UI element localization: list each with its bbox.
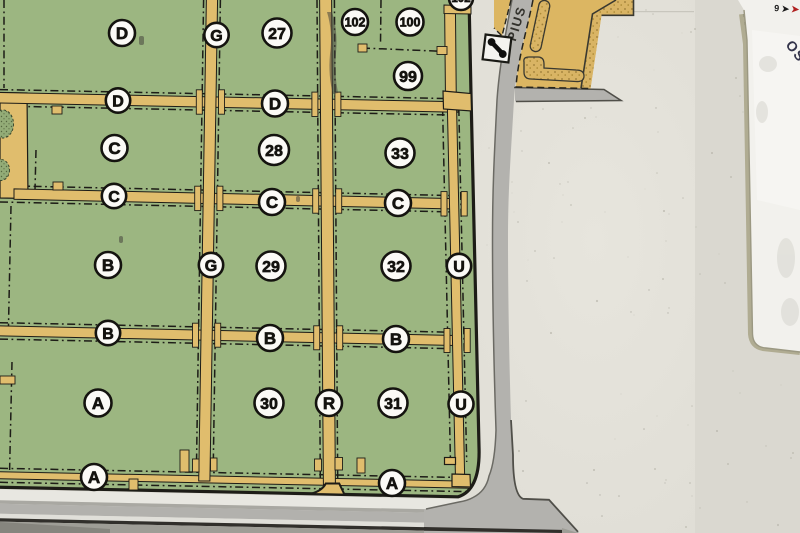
svg-text:30: 30 bbox=[260, 396, 278, 413]
svg-text:33: 33 bbox=[391, 146, 409, 163]
svg-text:D: D bbox=[112, 93, 124, 110]
svg-text:27: 27 bbox=[268, 26, 286, 43]
svg-text:A: A bbox=[92, 394, 104, 413]
svg-text:28: 28 bbox=[265, 143, 283, 160]
svg-text:B: B bbox=[102, 326, 114, 343]
svg-text:U: U bbox=[455, 397, 467, 414]
svg-text:U: U bbox=[453, 259, 465, 276]
svg-text:31: 31 bbox=[384, 396, 402, 413]
svg-text:102: 102 bbox=[451, 0, 470, 5]
svg-text:100: 100 bbox=[400, 16, 421, 30]
svg-text:99: 99 bbox=[399, 69, 417, 86]
svg-text:R: R bbox=[323, 394, 335, 413]
svg-text:D: D bbox=[116, 24, 128, 43]
svg-text:C: C bbox=[266, 193, 278, 212]
svg-text:A: A bbox=[88, 468, 100, 487]
svg-text:B: B bbox=[264, 329, 276, 348]
svg-text:C: C bbox=[108, 189, 120, 206]
svg-text:9 ➤: 9 ➤ bbox=[774, 3, 790, 14]
svg-text:C: C bbox=[392, 194, 404, 213]
svg-text:➤: ➤ bbox=[791, 4, 800, 16]
svg-text:29: 29 bbox=[262, 259, 280, 276]
svg-text:B: B bbox=[102, 256, 114, 275]
svg-text:102: 102 bbox=[345, 16, 366, 30]
svg-text:G: G bbox=[210, 28, 222, 45]
svg-text:B: B bbox=[390, 330, 402, 349]
svg-text:D: D bbox=[269, 95, 281, 114]
svg-text:A: A bbox=[386, 474, 398, 493]
svg-text:32: 32 bbox=[387, 259, 405, 276]
svg-text:C: C bbox=[108, 139, 120, 158]
svg-text:G: G bbox=[205, 258, 217, 275]
